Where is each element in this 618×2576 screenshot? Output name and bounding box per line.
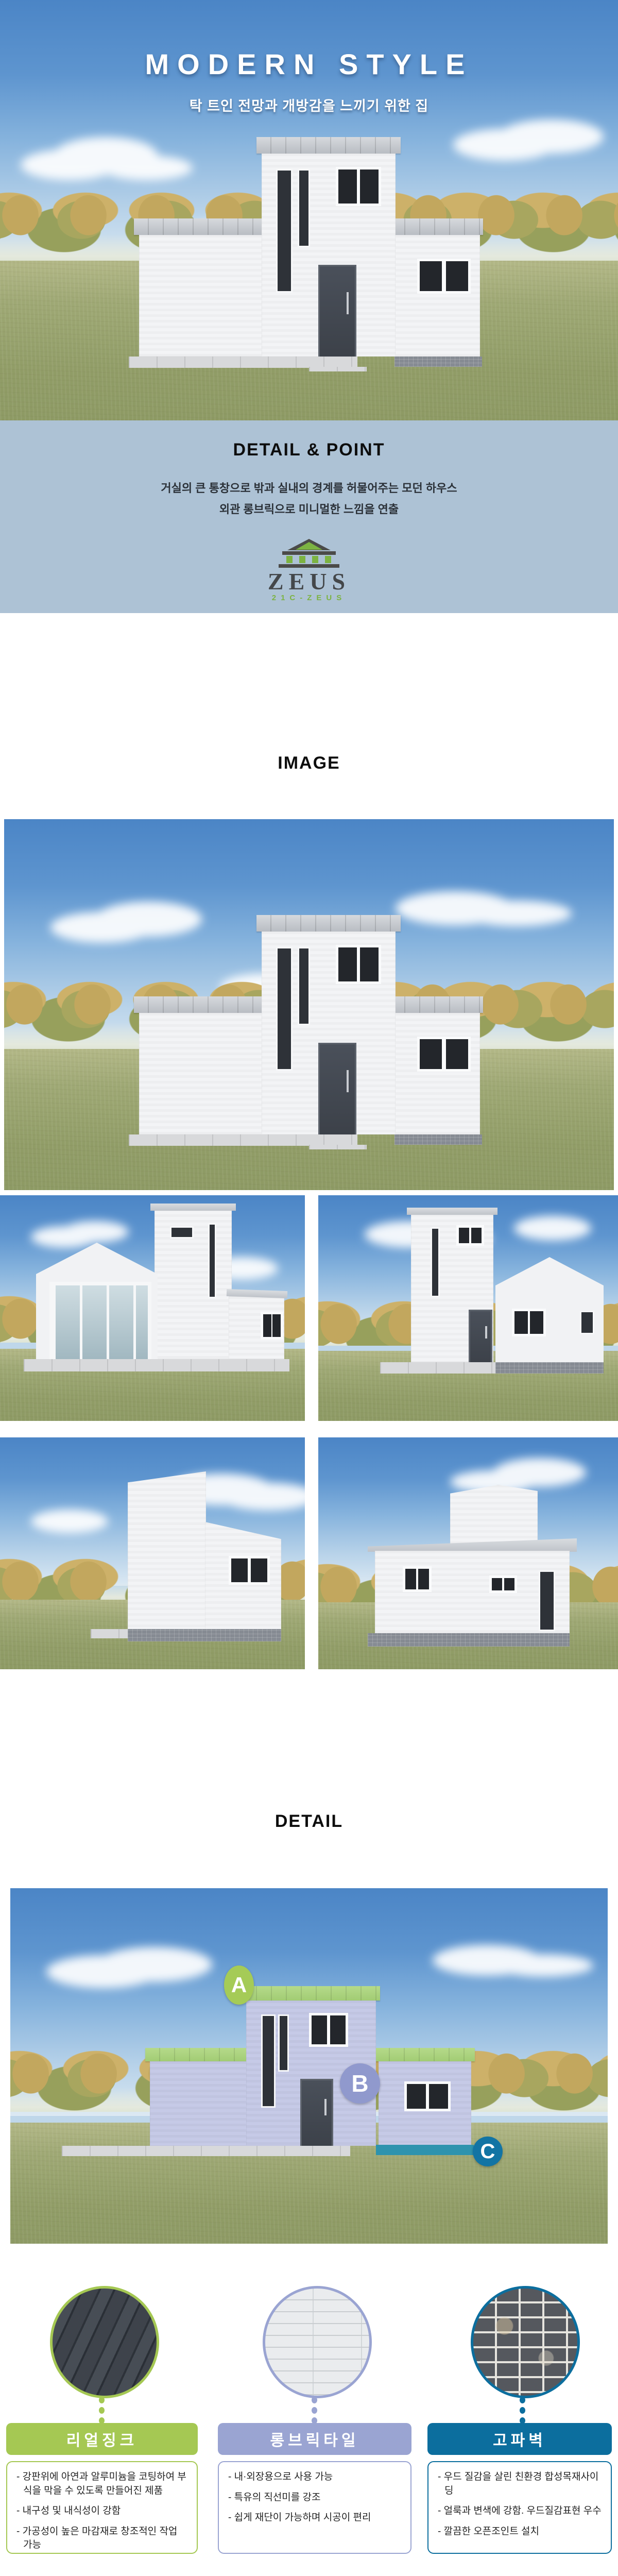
cloud — [46, 1955, 160, 1988]
right-wing-wall — [394, 1013, 480, 1134]
tower-slit-window — [431, 1227, 440, 1297]
stone-platform — [380, 1362, 495, 1374]
tile-plinth — [368, 1633, 570, 1647]
tower-square-window — [309, 2013, 348, 2047]
right-wing-roof — [375, 2048, 475, 2061]
bullet: - 가공성이 높은 마감재로 창조적인 작업 가능 — [16, 2525, 187, 2552]
image-section-title: IMAGE — [0, 753, 618, 773]
left-wing-roof — [145, 2048, 251, 2061]
connector-dots — [520, 2397, 525, 2424]
material-desc-real-zinc: - 강판위에 아연과 알루미늄을 코팅하여 부식을 막을 수 있도록 만들어진 … — [6, 2461, 198, 2554]
tower-slit-window — [170, 1226, 194, 1239]
temple-entablature — [282, 551, 336, 555]
gallery-render-rear-left — [0, 1437, 305, 1669]
detail-section-title: DETAIL — [0, 1811, 618, 1832]
entrance-door — [318, 1043, 356, 1138]
entry-step — [309, 1145, 367, 1149]
badge-c-plinth: C — [473, 2137, 503, 2166]
material-photo-long-brick — [263, 2286, 372, 2398]
teal-plinth — [376, 2145, 474, 2155]
material-desc-antique-brick: - 우드 질감을 살린 친환경 합성목재사이딩 - 얼룩과 변색에 강함. 우드… — [427, 2461, 612, 2554]
material-name-antique-brick: 고파벽 — [427, 2423, 612, 2455]
material-photo-real-zinc — [50, 2286, 159, 2398]
left-wing-wall — [150, 2061, 248, 2146]
badge-b-wall: B — [340, 2063, 380, 2104]
stone-platform — [129, 357, 357, 368]
tower-window — [456, 1225, 484, 1246]
material-desc-long-brick: - 내·외장용으로 사용 가능 - 특유의 직선미를 강조 - 쉽게 재단이 가… — [218, 2461, 411, 2554]
bullet: - 우드 질감을 살린 친환경 합성목재사이딩 — [438, 2470, 602, 2498]
entry-step — [309, 367, 367, 371]
bullet: - 깔끔한 오픈조인트 설치 — [438, 2525, 602, 2539]
tile-plinth — [394, 357, 482, 367]
connector-dots — [312, 2397, 317, 2424]
bullet: - 쉽게 재단이 가능하며 시공이 편리 — [228, 2511, 401, 2525]
cloud — [31, 1510, 108, 1533]
zeus-logo-icon — [278, 539, 340, 569]
tower-slit-window — [208, 1223, 216, 1298]
badge-c-label: C — [480, 2140, 495, 2163]
tower-roof — [256, 137, 401, 154]
hero-subtitle: 탁 트인 전망과 개방감을 느끼기 위한 집 — [0, 95, 618, 115]
left-wing-roof — [134, 996, 266, 1013]
temple-columns-icon — [286, 556, 332, 563]
hero-render: MODERN STYLE 탁 트인 전망과 개방감을 느끼기 위한 집 — [0, 0, 618, 420]
tile-plinth — [128, 1629, 281, 1641]
bullet: - 얼룩과 변색에 강함. 우드질감표현 우수 — [438, 2504, 602, 2518]
temple-pediment-icon — [296, 542, 322, 550]
right-wing-window — [417, 1037, 471, 1072]
wing-window — [512, 1309, 546, 1336]
material-title: 고파벽 — [493, 2428, 546, 2450]
left-wing-wall — [139, 1013, 263, 1134]
right-wing-window — [404, 2081, 451, 2111]
hero-title: MODERN STYLE — [0, 47, 618, 81]
bullet: - 특유의 직선미를 강조 — [228, 2491, 401, 2505]
detail-point-desc-2: 외관 롱브릭으로 미니멀한 느낌을 연출 — [0, 500, 618, 517]
right-wing-roof — [390, 218, 483, 235]
left-wing-wall — [139, 235, 263, 357]
entrance-door — [300, 2079, 333, 2149]
wing-window — [229, 1556, 270, 1585]
tall-tower-wall — [128, 1471, 206, 1629]
cloud — [396, 891, 514, 925]
zeus-logo-subtext: 21C-ZEUS — [0, 594, 618, 602]
tower-slit-window — [298, 947, 310, 1025]
tower-square-window — [336, 167, 381, 206]
bullet: - 강판위에 아연과 알루미늄을 코팅하여 부식을 막을 수 있도록 만들어진 … — [16, 2470, 187, 2498]
stone-platform — [91, 1629, 128, 1638]
cloud — [514, 1216, 591, 1241]
tower-slit-window — [276, 169, 293, 293]
bullet: - 내구성 및 내식성이 강함 — [16, 2504, 187, 2518]
gallery-render-rear — [318, 1437, 618, 1669]
upper-tower-wall — [450, 1485, 538, 1547]
cloud — [453, 129, 556, 161]
cloud — [31, 1226, 98, 1248]
stone-platform — [24, 1359, 289, 1371]
badge-b-label: B — [351, 2070, 368, 2097]
cloud — [433, 1945, 541, 1976]
small-window — [403, 1566, 432, 1592]
material-name-long-brick: 롱브릭타일 — [218, 2423, 411, 2455]
small-window — [489, 1575, 517, 1593]
badge-a-label: A — [231, 1973, 247, 1997]
left-wing-roof — [134, 218, 266, 235]
entrance-door — [469, 1310, 492, 1365]
side-window — [261, 1312, 283, 1340]
material-title: 롱브릭타일 — [270, 2428, 359, 2450]
temple-base — [279, 564, 339, 568]
tower-roof — [256, 915, 401, 931]
tower-roof — [407, 1208, 497, 1215]
detail-annotated-render: A B C — [10, 1888, 608, 2244]
tile-plinth — [495, 1362, 604, 1374]
entrance-door — [318, 265, 356, 360]
cloud — [21, 149, 118, 180]
porch-glass-wall — [49, 1282, 151, 1366]
gallery-main-render — [4, 819, 614, 1190]
detail-point-desc-1: 거실의 큰 통창으로 밖과 실내의 경계를 허물어주는 모던 하우스 — [0, 479, 618, 496]
stone-platform — [62, 2146, 350, 2156]
connector-dots — [99, 2397, 105, 2424]
right-wing-window — [417, 259, 471, 294]
material-photo-antique-brick — [471, 2286, 580, 2398]
cloud — [50, 912, 153, 943]
tower-slit-window — [261, 2014, 276, 2108]
right-wing-roof — [390, 996, 483, 1013]
detail-point-title: DETAIL & POINT — [0, 440, 618, 460]
tower-slit-window — [298, 169, 310, 247]
tower-roof — [150, 1204, 236, 1211]
tower-slit-window — [278, 2014, 289, 2072]
brochure-page: MODERN STYLE 탁 트인 전망과 개방감을 느끼기 위한 집 DETA… — [0, 0, 618, 2576]
right-wing-wall — [394, 235, 480, 357]
tower-roof — [242, 1986, 380, 2001]
wing-side-window — [580, 1311, 594, 1334]
tower-square-window — [336, 945, 381, 984]
badge-a-roof: A — [224, 1965, 254, 2005]
tile-plinth — [394, 1134, 482, 1145]
gallery-render-front-right — [318, 1195, 618, 1421]
tower-slit-window — [276, 947, 293, 1071]
material-title: 리얼징크 — [66, 2428, 138, 2450]
zeus-logo-text: ZEUS — [0, 568, 618, 595]
cloud — [493, 1458, 586, 1487]
gallery-render-front-left — [0, 1195, 305, 1421]
material-name-real-zinc: 리얼징크 — [6, 2423, 198, 2455]
tall-window — [539, 1570, 555, 1631]
stone-platform — [129, 1134, 357, 1146]
bullet: - 내·외장용으로 사용 가능 — [228, 2470, 401, 2484]
detail-point-band: DETAIL & POINT 거실의 큰 통창으로 밖과 실내의 경계를 허물어… — [0, 420, 618, 613]
